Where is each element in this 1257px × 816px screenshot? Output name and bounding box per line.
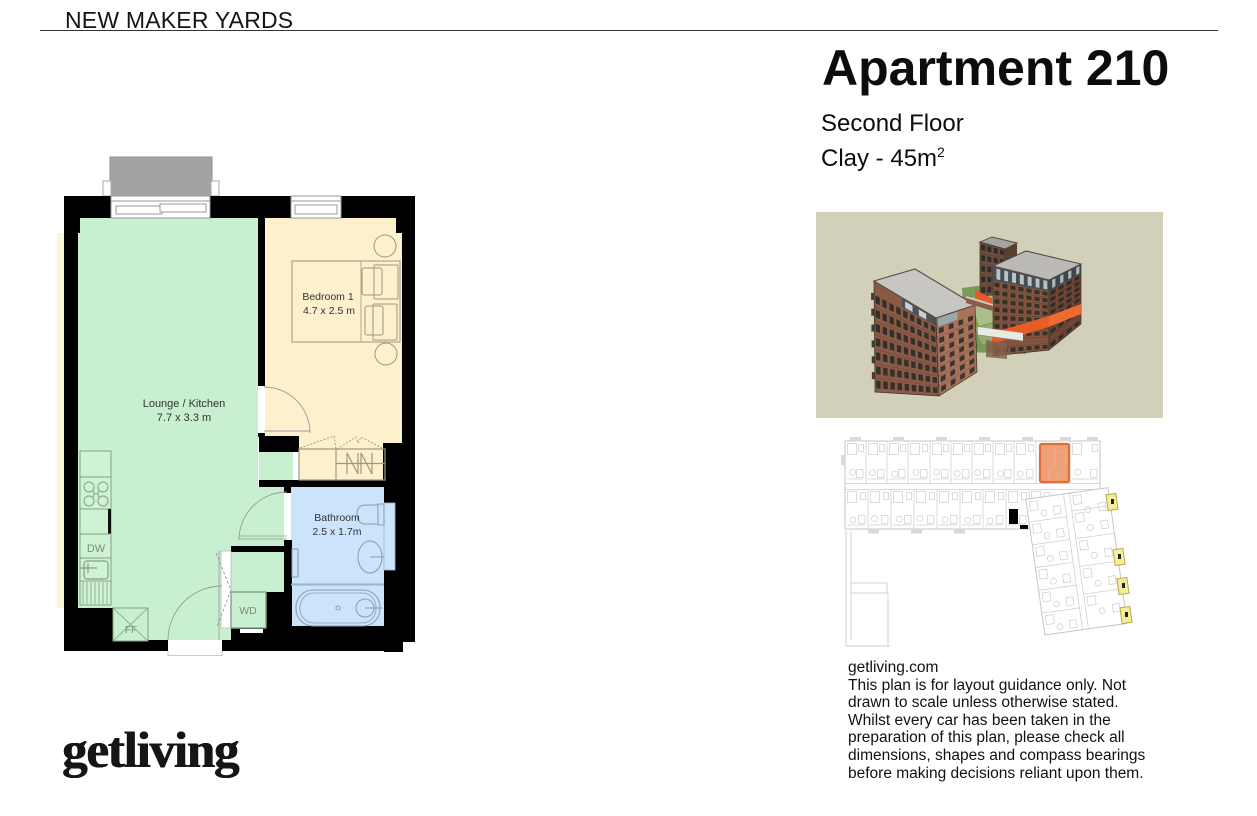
svg-text:Lounge / Kitchen: Lounge / Kitchen [143,398,226,410]
svg-text:FF: FF [125,625,137,636]
svg-text:2.5 x 1.7m: 2.5 x 1.7m [312,526,361,538]
svg-text:Bathroom: Bathroom [314,512,360,524]
svg-text:4.7 x 2.5 m: 4.7 x 2.5 m [303,305,355,317]
svg-text:DW: DW [87,543,106,555]
svg-text:WD: WD [239,605,257,617]
svg-text:7.7 x 3.3 m: 7.7 x 3.3 m [157,412,211,424]
svg-text:Bedroom 1: Bedroom 1 [302,291,354,303]
svg-text:H: H [93,489,100,499]
